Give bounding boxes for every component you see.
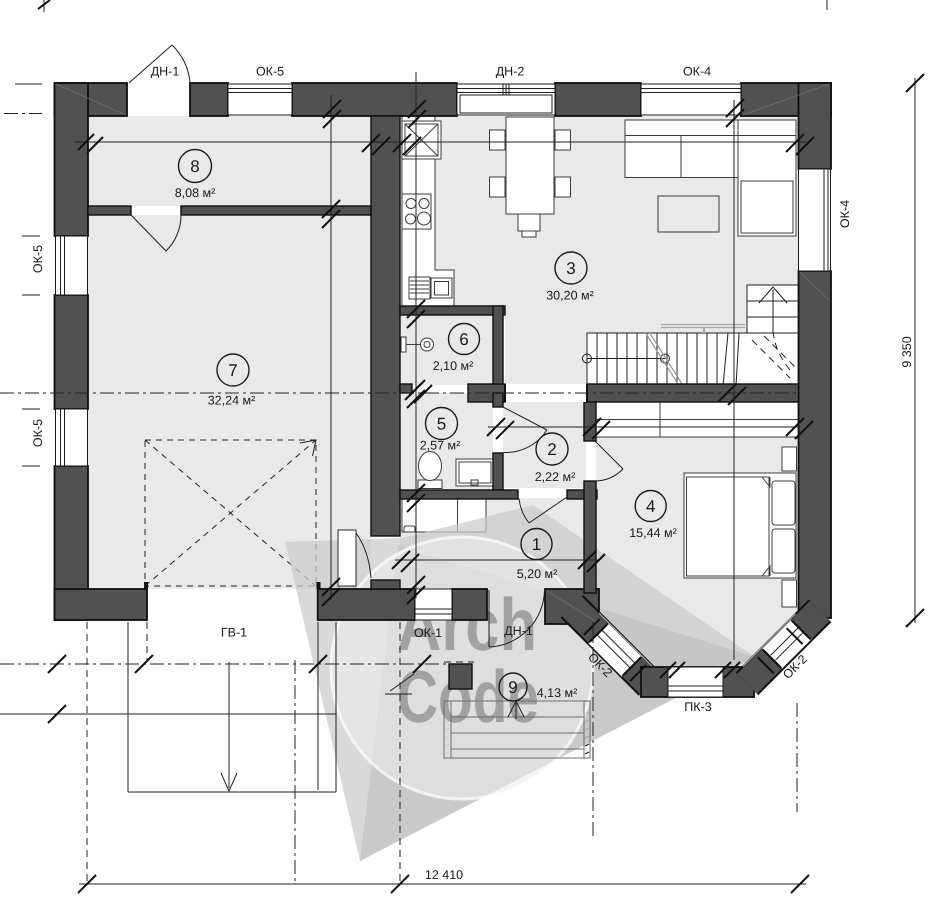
svg-text:ОК-5: ОК-5	[31, 419, 45, 447]
svg-text:ОК-5: ОК-5	[256, 65, 284, 79]
svg-text:15,44 м²: 15,44 м²	[629, 526, 677, 540]
svg-text:8: 8	[190, 157, 199, 176]
svg-text:2: 2	[547, 440, 556, 459]
svg-text:9 350: 9 350	[900, 336, 914, 367]
svg-text:30,20 м²: 30,20 м²	[546, 289, 594, 303]
svg-text:1: 1	[532, 535, 541, 554]
svg-text:ОК-1: ОК-1	[414, 626, 442, 640]
svg-text:ПК-3: ПК-3	[684, 700, 711, 714]
svg-text:7: 7	[228, 361, 237, 380]
svg-text:ОК-4: ОК-4	[683, 65, 711, 79]
svg-text:2,57 м²: 2,57 м²	[420, 439, 461, 453]
svg-text:ГВ-1: ГВ-1	[221, 626, 247, 640]
svg-text:ОК-4: ОК-4	[838, 200, 852, 228]
svg-text:8,08 м²: 8,08 м²	[175, 186, 216, 200]
svg-text:ОК-5: ОК-5	[31, 245, 45, 273]
svg-text:ДН-1: ДН-1	[504, 624, 533, 638]
svg-text:ДН-1: ДН-1	[151, 65, 180, 79]
svg-text:2,10 м²: 2,10 м²	[433, 359, 474, 373]
svg-text:12 410: 12 410	[425, 868, 463, 882]
svg-text:6: 6	[459, 330, 468, 349]
svg-text:4,13 м²: 4,13 м²	[537, 686, 578, 700]
svg-text:9: 9	[508, 678, 517, 697]
svg-text:ДН-2: ДН-2	[496, 65, 525, 79]
svg-text:3: 3	[566, 259, 575, 278]
svg-text:2,22 м²: 2,22 м²	[535, 470, 576, 484]
svg-text:5,20 м²: 5,20 м²	[517, 567, 558, 581]
svg-text:5: 5	[437, 415, 446, 434]
svg-text:4: 4	[646, 497, 655, 516]
svg-text:32,24 м²: 32,24 м²	[208, 394, 256, 408]
